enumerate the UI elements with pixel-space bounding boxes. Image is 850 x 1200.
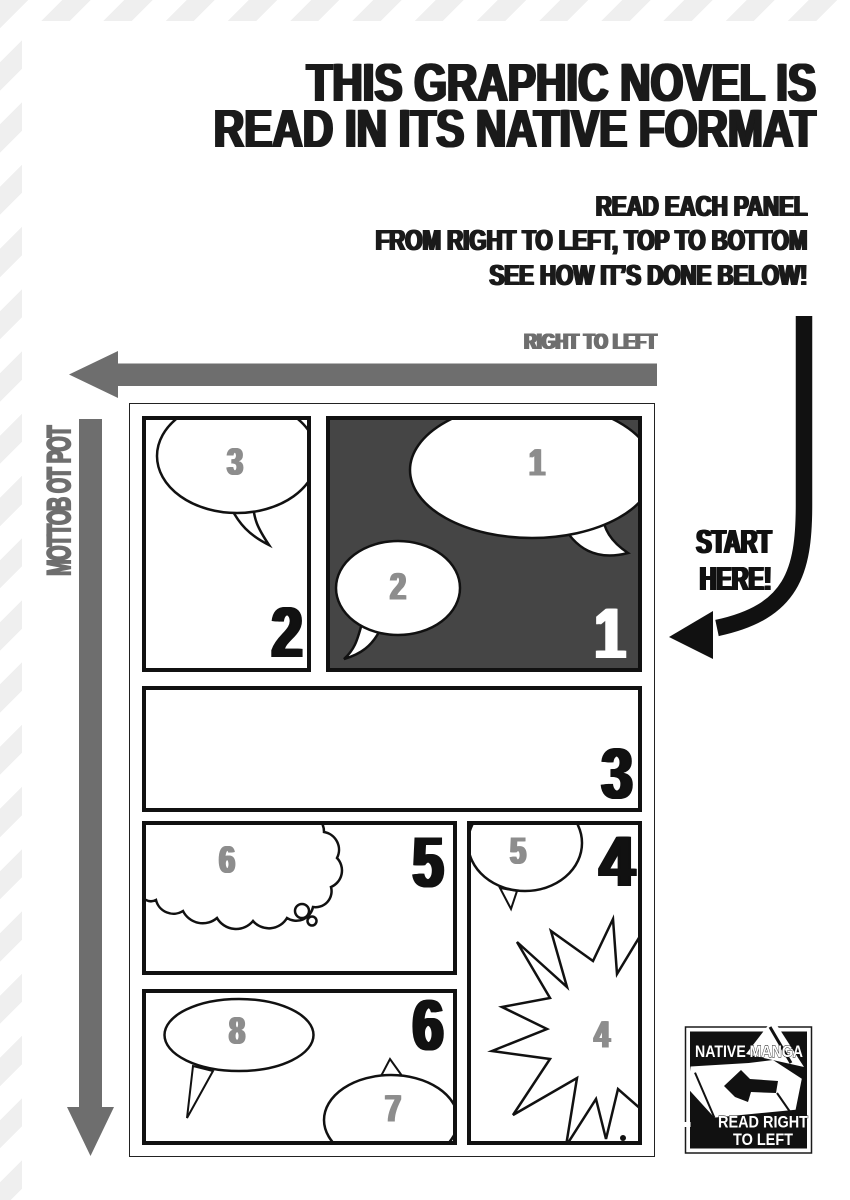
svg-text:NATIVE MANGA: NATIVE MANGA <box>695 1042 803 1061</box>
svg-text:READ RIGHT: READ RIGHT <box>718 1113 808 1131</box>
svg-text:TO LEFT: TO LEFT <box>733 1131 793 1149</box>
